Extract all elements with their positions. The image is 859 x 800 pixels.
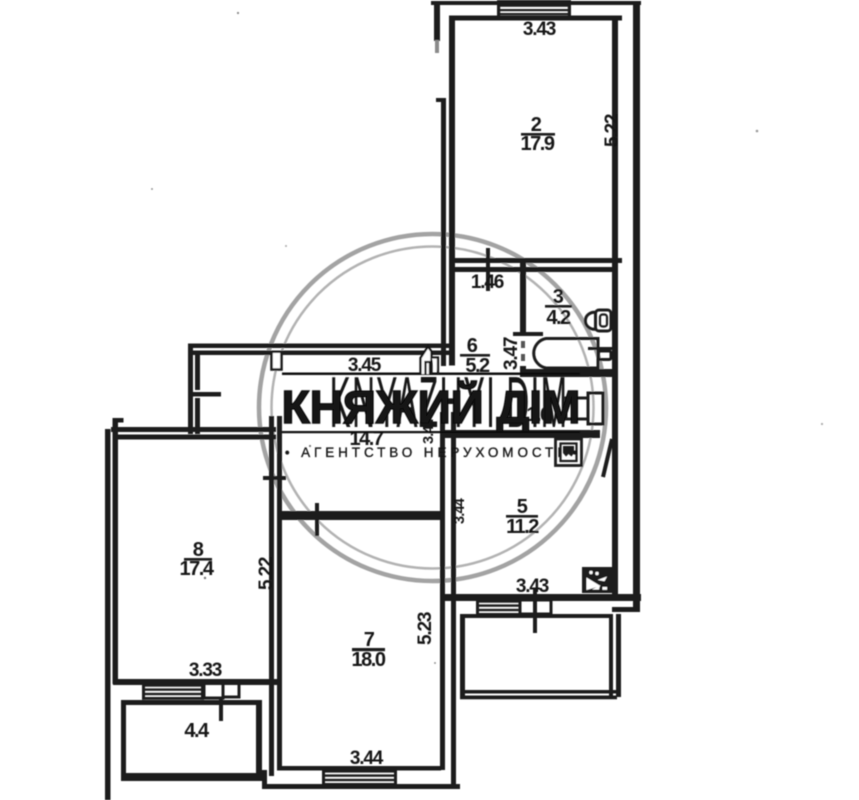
svg-text:4.2: 4.2 bbox=[546, 307, 571, 329]
svg-text:7: 7 bbox=[364, 629, 375, 651]
svg-text:6: 6 bbox=[467, 335, 478, 357]
svg-text:1.46: 1.46 bbox=[471, 272, 504, 293]
svg-text:3.47: 3.47 bbox=[501, 337, 522, 370]
svg-text:• АГЕНТСТВО НЕРУХОМОСТІ •: • АГЕНТСТВО НЕРУХОМОСТІ • bbox=[285, 445, 581, 460]
svg-text:17.9: 17.9 bbox=[521, 133, 555, 155]
svg-text:3.43: 3.43 bbox=[516, 576, 549, 597]
svg-text:18.0: 18.0 bbox=[352, 649, 386, 671]
svg-text:17.4: 17.4 bbox=[180, 558, 215, 580]
svg-text:КНЯЖИЙ ДІМ: КНЯЖИЙ ДІМ bbox=[282, 381, 581, 433]
svg-text:5.22: 5.22 bbox=[256, 557, 277, 590]
svg-text:3.44: 3.44 bbox=[452, 498, 468, 524]
svg-text:3.43: 3.43 bbox=[523, 19, 556, 40]
svg-text:5: 5 bbox=[517, 496, 528, 518]
svg-text:11.2: 11.2 bbox=[506, 516, 539, 538]
svg-text:3.33: 3.33 bbox=[189, 660, 222, 681]
svg-text:3.44: 3.44 bbox=[350, 748, 384, 769]
svg-text:4.4: 4.4 bbox=[184, 720, 210, 742]
svg-text:5.23: 5.23 bbox=[415, 612, 436, 645]
svg-text:3: 3 bbox=[553, 286, 564, 308]
svg-text:5.22: 5.22 bbox=[602, 114, 623, 147]
